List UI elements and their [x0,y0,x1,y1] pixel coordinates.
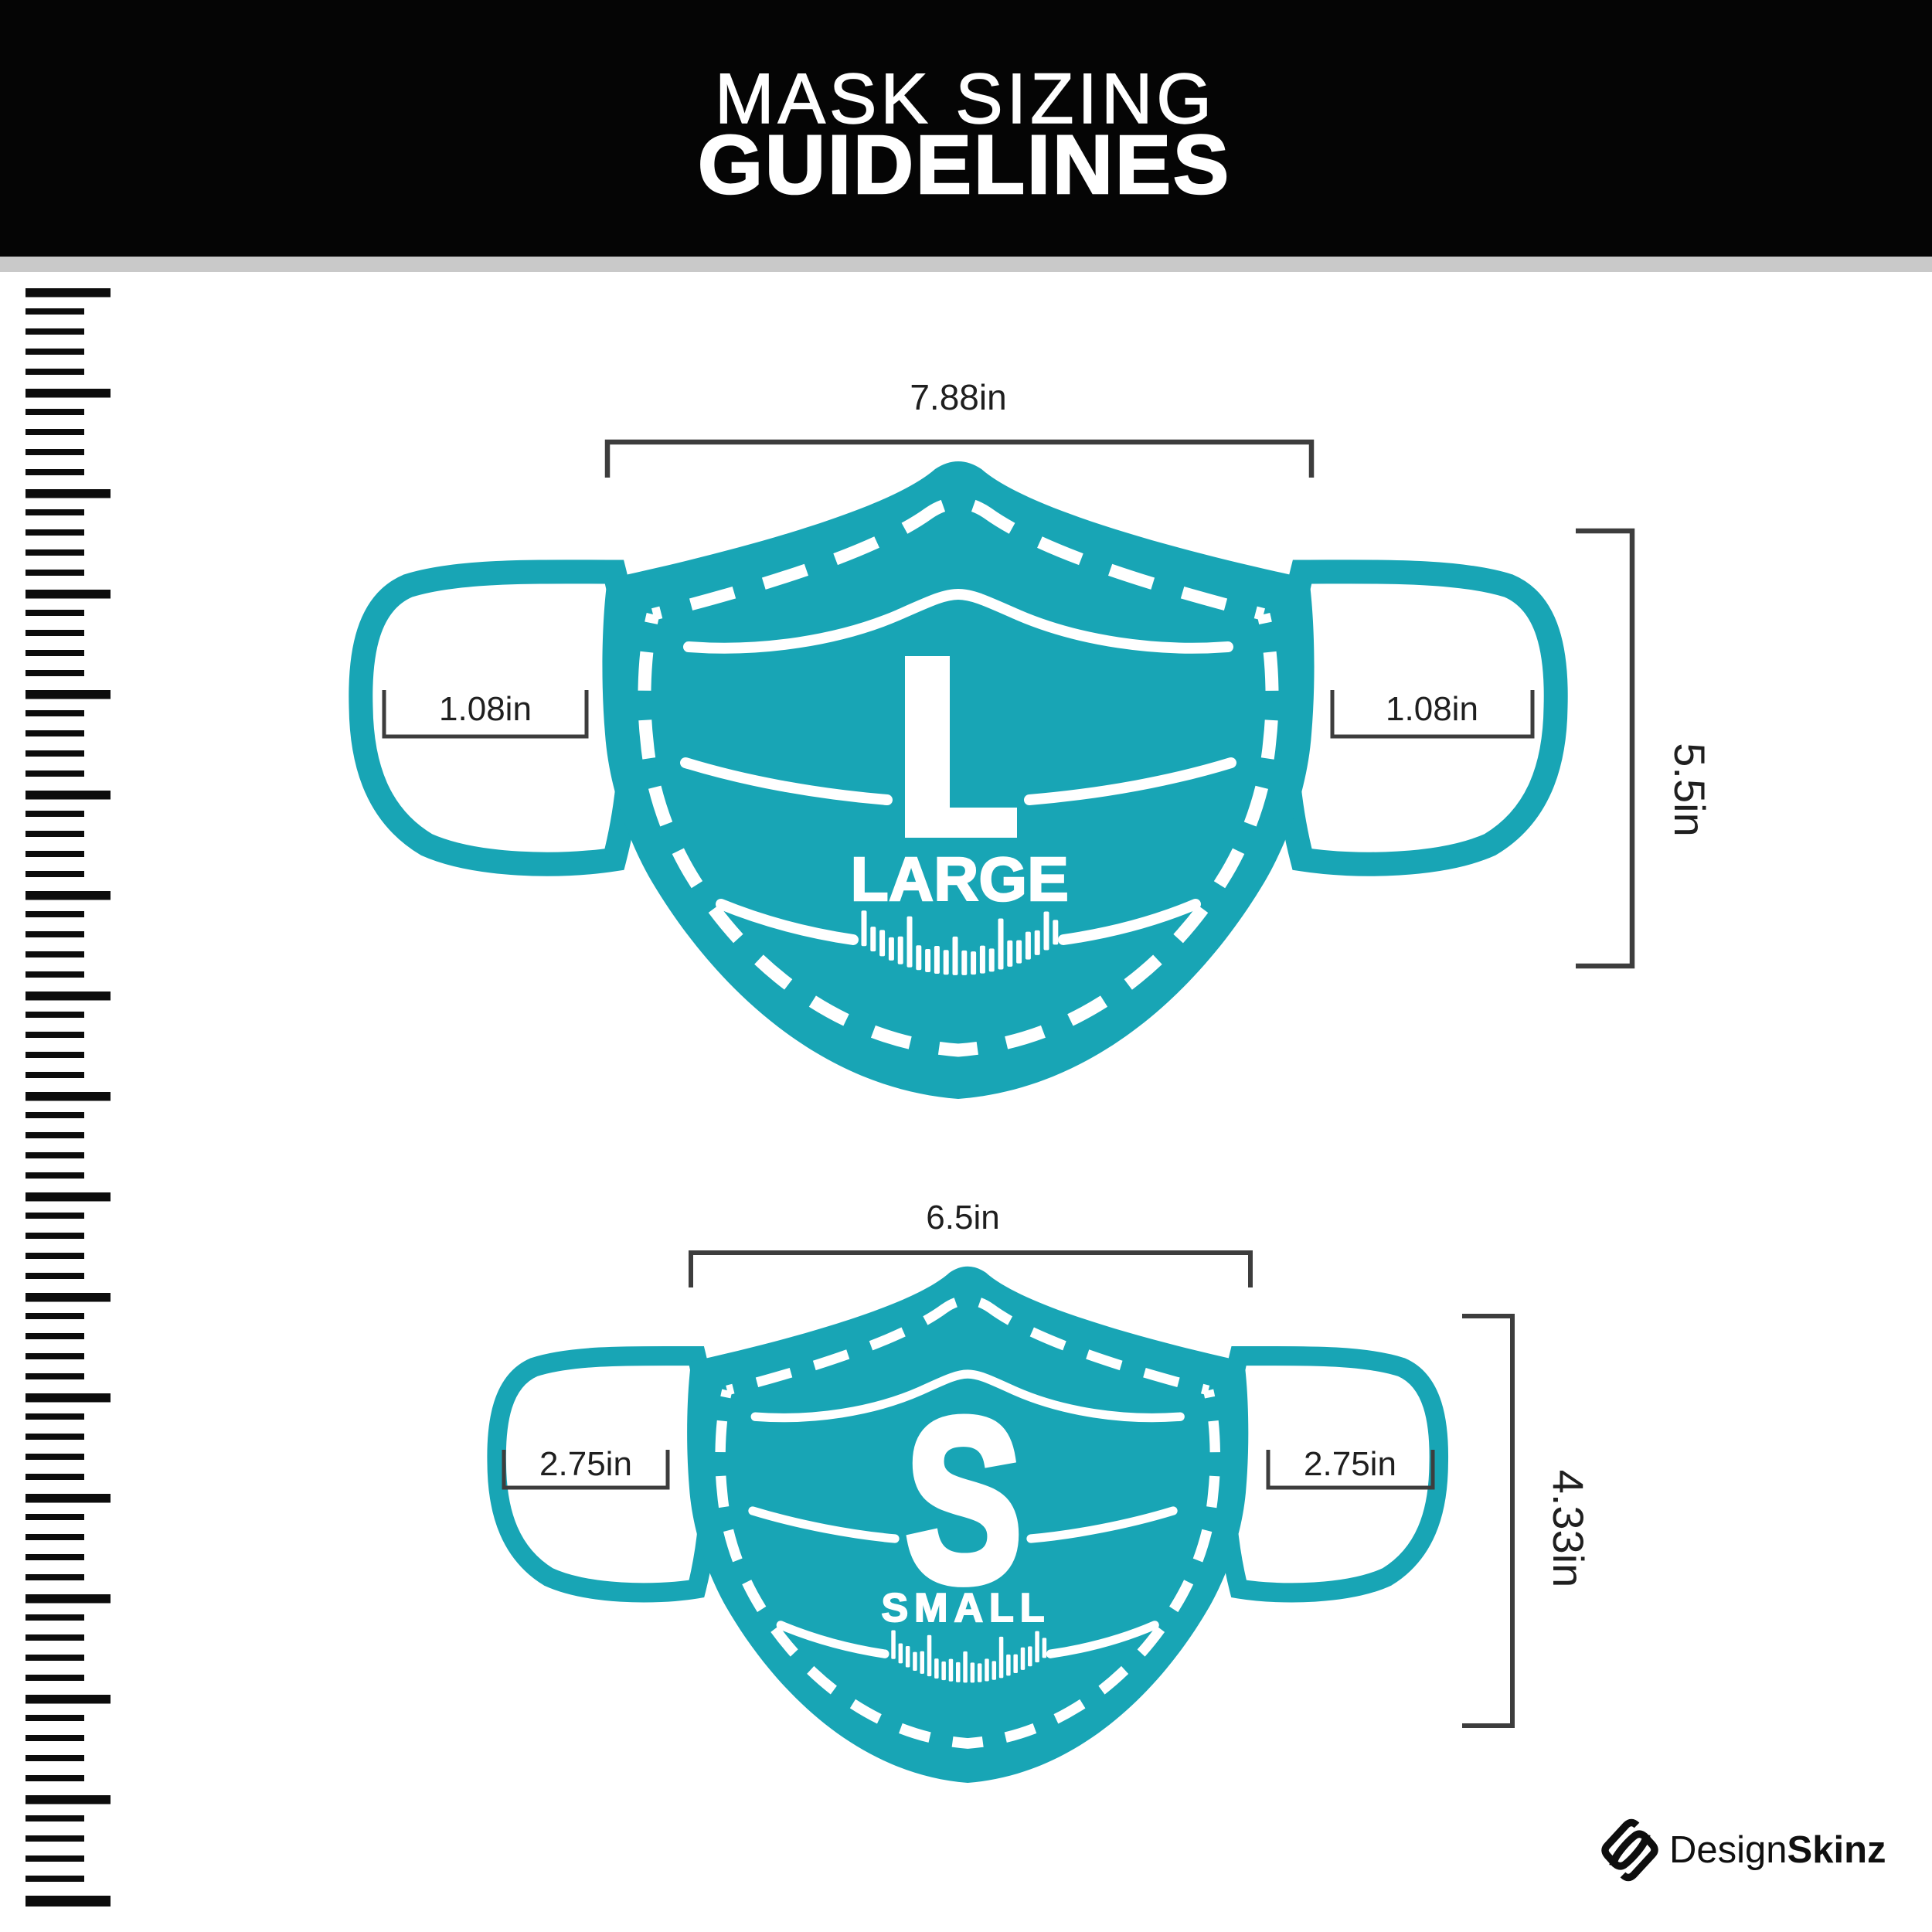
svg-text:DesignSkinz: DesignSkinz [1669,1829,1886,1871]
svg-text:5.5in: 5.5in [1665,743,1714,836]
svg-text:SMALL: SMALL [881,1586,1050,1631]
svg-text:1.08in: 1.08in [439,690,532,728]
svg-text:1.08in: 1.08in [1386,690,1478,728]
svg-text:LARGE: LARGE [851,845,1070,913]
svg-text:4.33in: 4.33in [1544,1470,1593,1588]
svg-text:6.5in: 6.5in [926,1199,999,1236]
svg-text:7.88in: 7.88in [910,377,1006,417]
svg-text:2.75in: 2.75in [1304,1445,1396,1483]
svg-text:2.75in: 2.75in [539,1445,632,1483]
svg-text:GUIDELINES: GUIDELINES [698,117,1231,211]
